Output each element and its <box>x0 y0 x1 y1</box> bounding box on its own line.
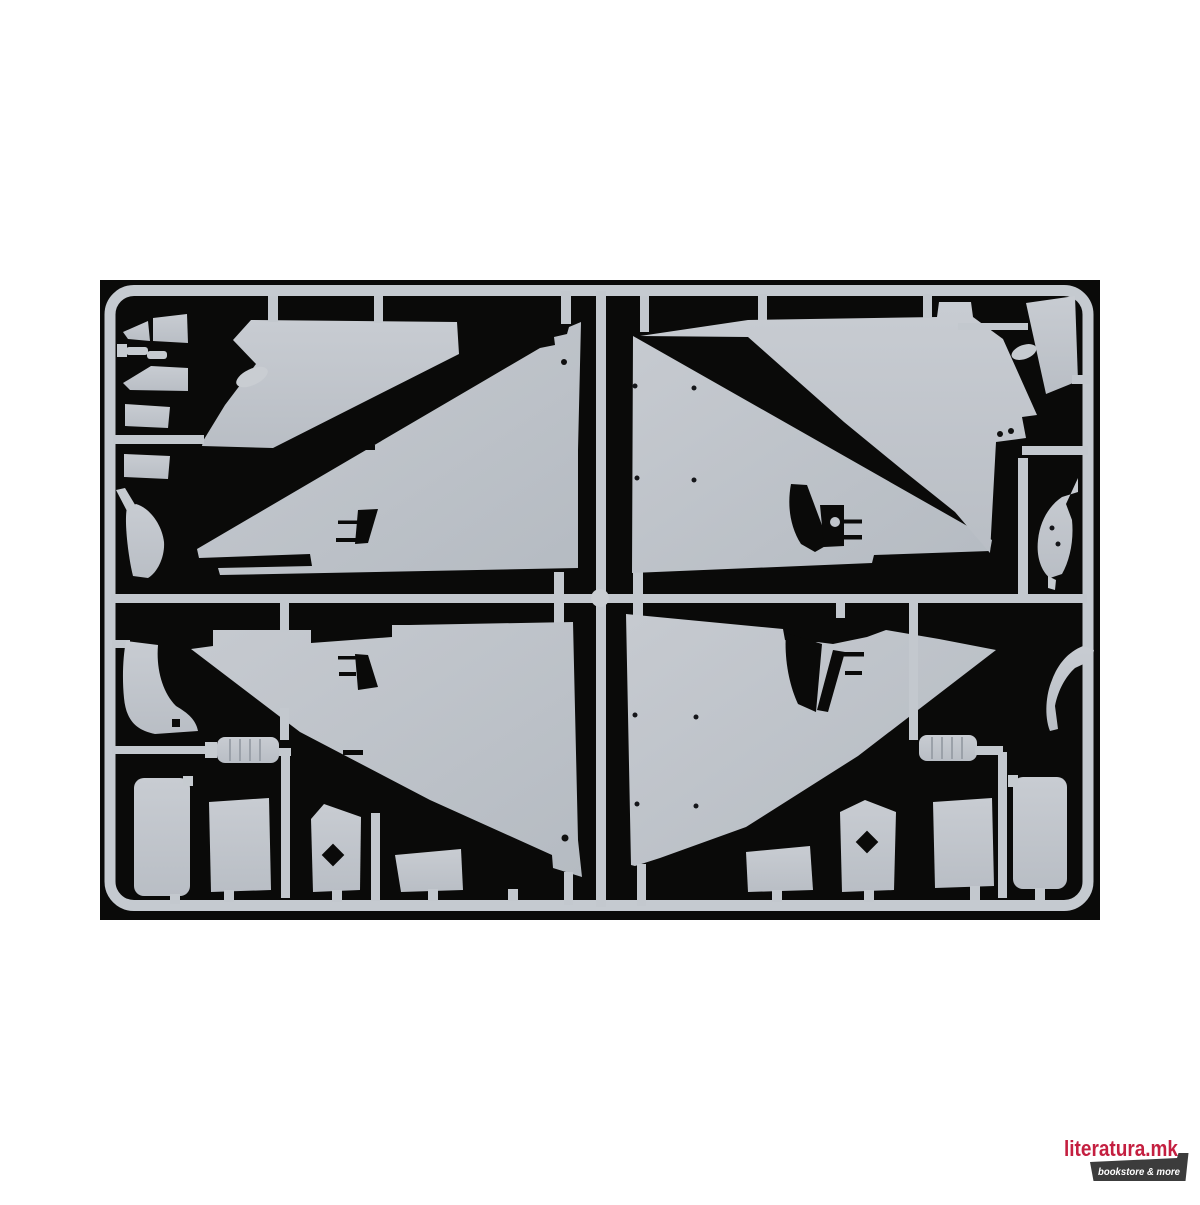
svg-text:literatura.mk: literatura.mk <box>1064 1136 1179 1161</box>
svg-text:bookstore & more: bookstore & more <box>1098 1166 1180 1178</box>
